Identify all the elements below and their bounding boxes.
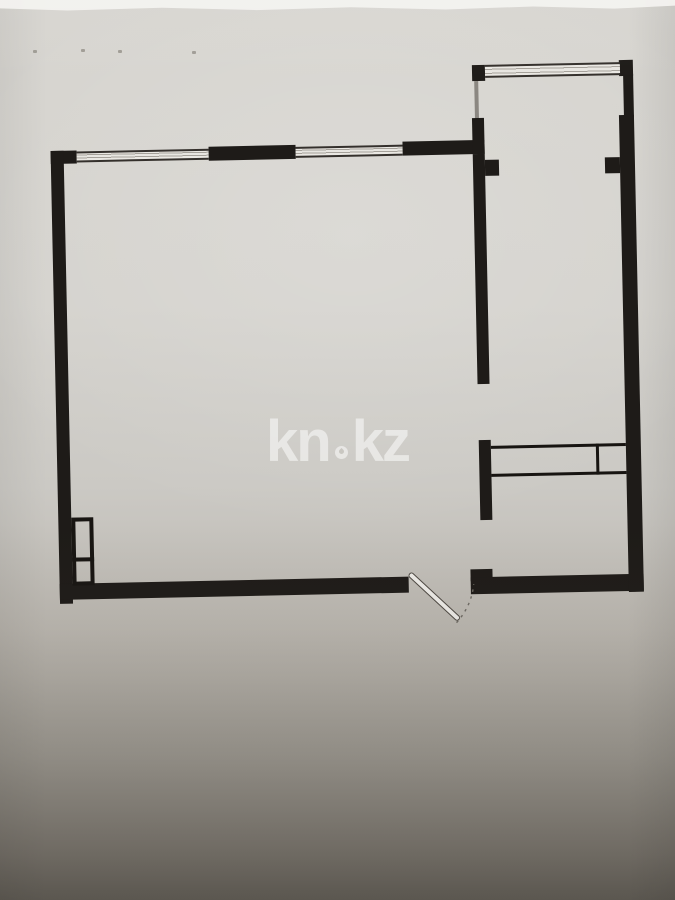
ventilation-shaft bbox=[71, 517, 94, 585]
wall-right bbox=[619, 115, 644, 592]
floor-plan bbox=[0, 0, 675, 900]
balcony-opening-stub-left bbox=[485, 160, 499, 176]
balcony-window bbox=[485, 62, 620, 78]
balcony-window-corner-left bbox=[472, 65, 485, 81]
wall-interior-upper bbox=[473, 154, 490, 384]
wall-bottom-main bbox=[60, 577, 409, 600]
ventilation-shaft-divider bbox=[72, 557, 94, 561]
window-top-right bbox=[296, 145, 403, 158]
balcony-window-corner-right bbox=[619, 60, 633, 76]
floorplan-photo: kn kz bbox=[0, 0, 675, 900]
wall-bottom-right bbox=[471, 574, 644, 595]
closet-bottom-line bbox=[491, 471, 626, 477]
entry-door-leaf bbox=[407, 571, 461, 622]
wall-left bbox=[51, 151, 73, 604]
wall-right-balcony bbox=[623, 74, 634, 117]
door-swing-arc bbox=[0, 0, 675, 900]
balcony-left-glass-line bbox=[474, 81, 479, 120]
closet-top-line bbox=[491, 443, 626, 449]
window-top-left bbox=[77, 149, 209, 163]
wall-top-middle bbox=[209, 145, 296, 161]
wall-interior-middle bbox=[479, 440, 493, 520]
balcony-opening-stub-right bbox=[605, 157, 620, 173]
closet-divider-line bbox=[596, 444, 600, 475]
balcony-left-wall-piece bbox=[472, 118, 485, 154]
